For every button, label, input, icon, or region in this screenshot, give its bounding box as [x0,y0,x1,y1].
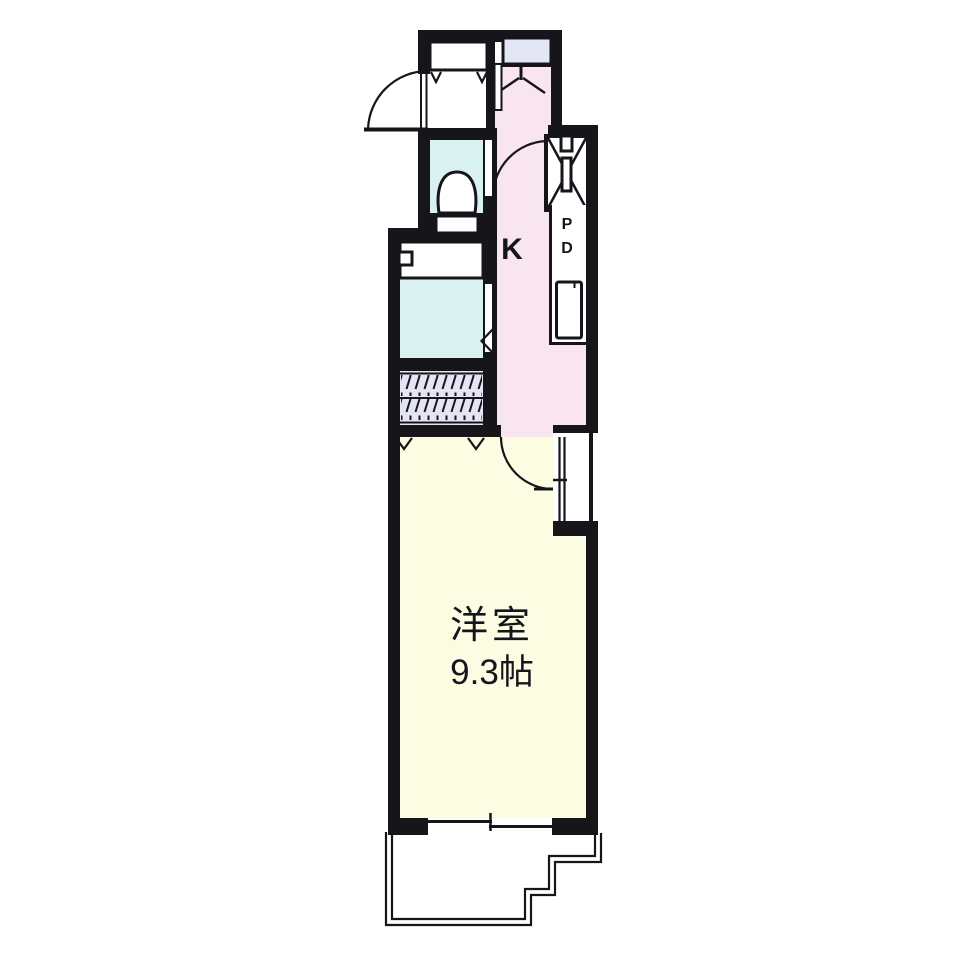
kitchen-floor-strip [497,135,546,425]
floor-plan-page: P D K 洋室 9.3帖 [0,0,960,960]
toilet-bowl-icon [438,172,476,213]
upper-closet-box [503,38,551,64]
main-room-name-label: 洋室 [450,605,534,647]
bathroom-door [482,283,494,353]
sink-icon [557,282,582,338]
duct-vent-top [561,136,572,151]
side-window [553,433,598,521]
kitchen-doorway-floor [501,425,553,437]
bathroom-floor [400,278,483,358]
washbasin-area [399,242,483,278]
main-room-size-label: 9.3帖 [450,653,534,692]
toilet-tank [436,216,478,233]
pipe-duct-letter-p: P [562,216,573,233]
entrance-closet-box [430,42,487,70]
closet-hatch-row-1 [401,375,482,396]
kitchen-label: K [501,233,523,266]
floor-plan-canvas: P D K 洋室 9.3帖 [0,0,960,960]
upper-closet-door-leaf [495,64,502,110]
bathroom-door-leaf [484,283,493,353]
toilet-door-leaf [484,139,493,197]
closet-hatch-row-2 [401,399,482,420]
duct-and-counter: P D [546,136,588,345]
side-window-outer-line [589,433,593,521]
pipe-duct-letter-d: D [561,240,573,257]
washbasin-faucet-icon [399,252,412,265]
duct-vent-mid [562,158,571,191]
